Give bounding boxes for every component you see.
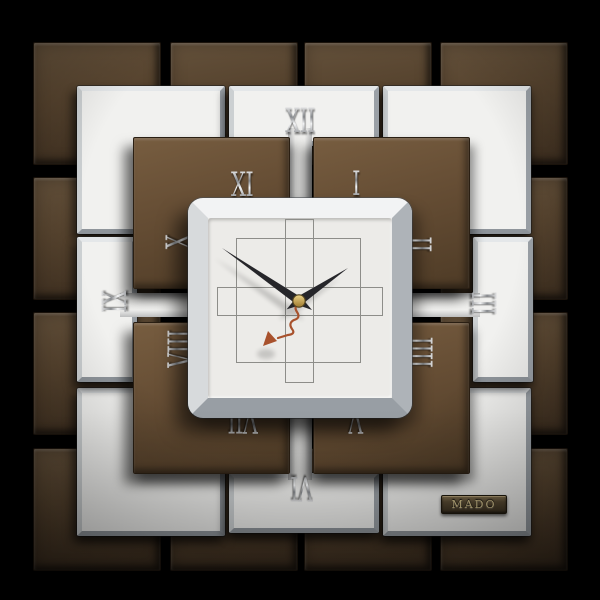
dial-pattern-horizontal-bar [217, 287, 383, 316]
numeral-iii: III [466, 291, 500, 314]
numeral-xii: XII [285, 104, 315, 138]
numeral-i: I [352, 167, 360, 201]
mado-wall-clock: XIIIIIIIIIIIIVVIVIIVIIIIXXXI [0, 0, 600, 600]
brand-badge-label: MADO [451, 498, 496, 511]
clock-face [188, 198, 412, 418]
numeral-ix: IX [98, 291, 132, 313]
numeral-vi: VI [291, 471, 313, 505]
clock-dial [208, 218, 392, 398]
brand-badge: MADO [441, 495, 507, 514]
numeral-xi: XI [231, 168, 253, 202]
